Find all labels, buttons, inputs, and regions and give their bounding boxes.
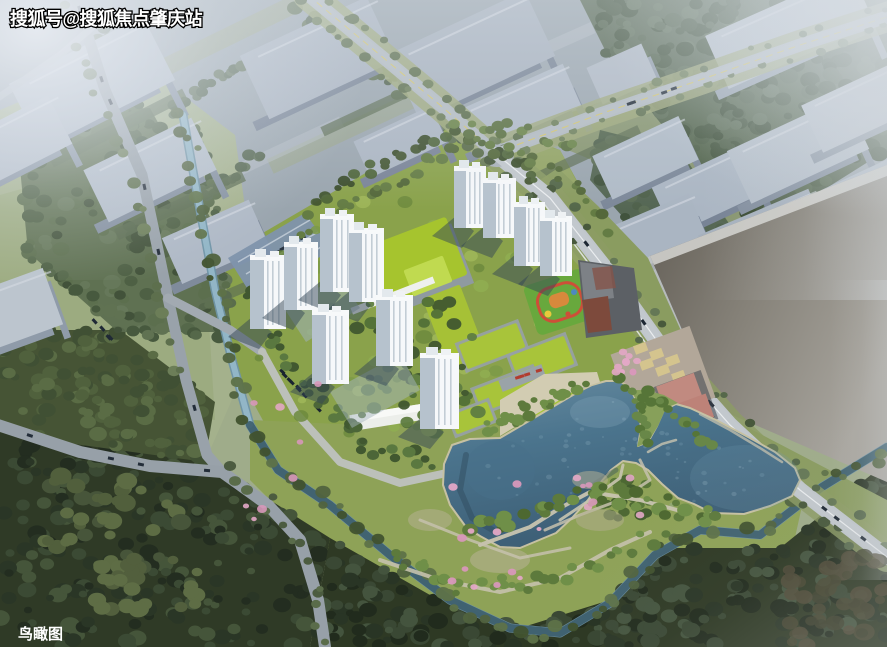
- svg-text:搜狐号@搜狐焦点肇庆站: 搜狐号@搜狐焦点肇庆站: [10, 8, 203, 29]
- svg-text:鸟瞰图: 鸟瞰图: [18, 625, 63, 643]
